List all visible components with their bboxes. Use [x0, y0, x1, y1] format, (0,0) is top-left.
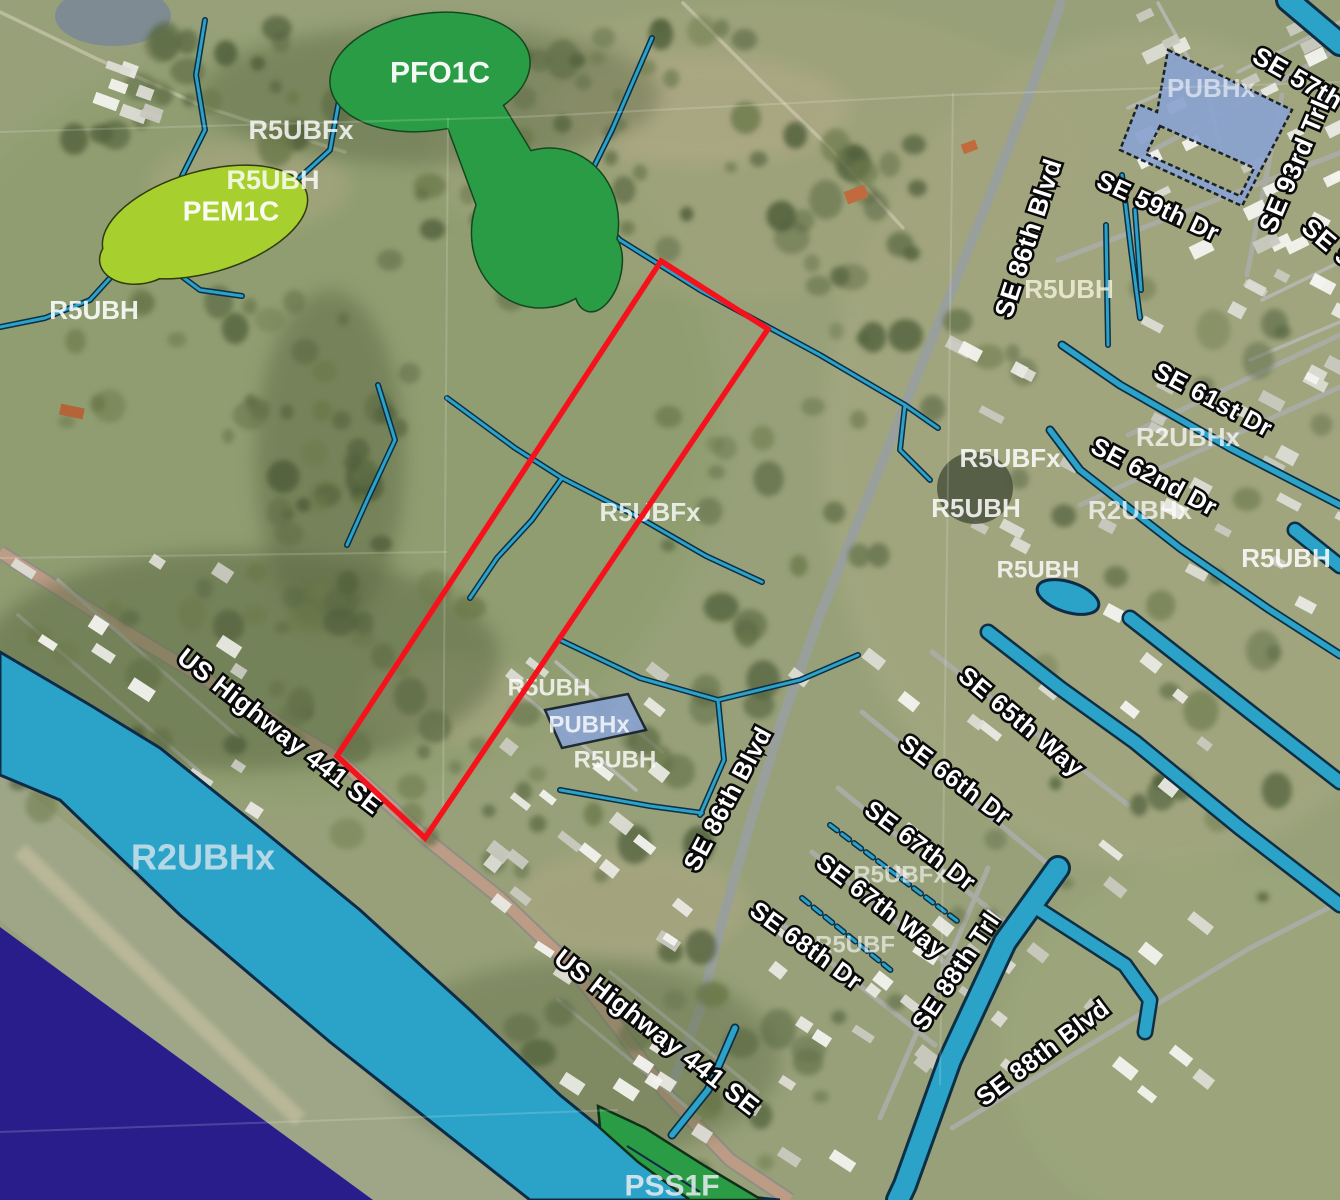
tree-blob: [280, 404, 293, 419]
tree-blob: [262, 16, 292, 41]
tree-blob: [888, 319, 923, 352]
tree-blob: [332, 411, 352, 430]
tree-blob: [680, 207, 693, 222]
wetland-label-r5ubh: R5UBH: [1241, 543, 1331, 573]
tree-blob: [351, 629, 376, 648]
tree-blob: [106, 601, 122, 616]
tree-blob: [849, 160, 879, 185]
tree-blob: [757, 1155, 773, 1170]
tree-blob: [344, 454, 362, 472]
tree-blob: [529, 815, 546, 832]
wetland-label-pubhx: PUBHx: [548, 712, 630, 739]
tree-blob: [149, 22, 181, 61]
tree-blob: [323, 609, 359, 636]
wetland-label-r5ubh: R5UBH: [1024, 274, 1114, 304]
tree-blob: [655, 406, 682, 428]
tree-blob: [584, 802, 603, 826]
tree-blob: [985, 829, 1007, 850]
wetland-label-pem1c: PEM1C: [183, 196, 279, 227]
tree-blob: [394, 677, 427, 715]
tree-blob: [823, 502, 845, 524]
tree-blob: [246, 563, 267, 582]
tree-blob: [482, 805, 496, 818]
tree-blob: [337, 312, 350, 326]
wetland-label-r5ubh: R5UBH: [997, 557, 1080, 584]
tree-blob: [793, 1048, 824, 1075]
tree-blob: [1051, 504, 1076, 527]
tree-blob: [750, 151, 768, 167]
tree-blob: [696, 982, 729, 1007]
wetland-label-r2ubhx: R2UBHx: [1136, 422, 1241, 452]
tree-blob: [654, 20, 668, 33]
tree-blob: [813, 1091, 829, 1103]
tree-blob: [233, 401, 268, 430]
tree-blob: [687, 16, 718, 46]
tree-blob: [503, 1013, 539, 1042]
tree-blob: [291, 339, 319, 365]
tree-blob: [663, 69, 679, 88]
tree-blob: [60, 123, 88, 155]
tree-blob: [753, 461, 783, 496]
tree-blob: [214, 40, 237, 66]
tree-blob: [1257, 892, 1269, 902]
wetland-label-r5ubh: R5UBH: [574, 747, 657, 774]
tree-blob: [167, 332, 186, 347]
tree-blob: [178, 597, 206, 631]
tree-blob: [370, 536, 392, 553]
tree-blob: [575, 74, 592, 90]
wetland-label-r5ubh: R5UBH: [226, 165, 319, 195]
wetland-label-r5ubfx: R5UBFx: [248, 115, 353, 145]
tree-blob: [848, 544, 870, 568]
tree-blob: [251, 56, 266, 71]
tree-blob: [790, 555, 808, 577]
tree-blob: [868, 543, 890, 568]
map-svg: PFO1CR5UBFxR5UBHPEM1CR5UBHR5UBFxR5UBHPUB…: [0, 0, 1340, 1200]
tree-blob: [371, 643, 395, 670]
tree-blob: [222, 429, 234, 444]
tree-blob: [337, 571, 359, 595]
tree-blob: [213, 610, 244, 643]
tree-blob: [1049, 777, 1062, 791]
tree-blob: [1130, 794, 1148, 817]
tree-blob: [255, 308, 286, 332]
tree-blob: [287, 687, 314, 720]
wetland-label-r2ubhx: R2UBHx: [131, 837, 275, 878]
tree-blob: [310, 582, 327, 602]
tree-blob: [301, 440, 328, 468]
tree-blob: [269, 80, 282, 94]
tree-blob: [801, 398, 825, 416]
tree-blob: [943, 309, 972, 334]
tree-blob: [281, 509, 293, 520]
tree-blob: [296, 498, 311, 512]
wetland-label-pss1f: PSS1F: [624, 1170, 719, 1200]
tree-blob: [282, 587, 303, 609]
tree-blob: [879, 152, 900, 177]
tree-blob: [1267, 645, 1282, 662]
tree-blob: [312, 400, 332, 421]
tree-blob: [821, 129, 851, 164]
tree-blob: [269, 681, 285, 698]
tree-blob: [1183, 690, 1218, 731]
tree-blob: [1311, 414, 1333, 436]
tree-blob: [806, 276, 832, 296]
tree-blob: [725, 162, 738, 173]
tree-blob: [544, 999, 574, 1027]
tree-blob: [397, 774, 426, 800]
tree-blob: [287, 91, 299, 105]
tree-blob: [275, 622, 291, 634]
wetland-label-pubhx: PUBHx: [1167, 73, 1256, 103]
tree-blob: [887, 232, 914, 257]
tree-blob: [774, 221, 810, 254]
tree-blob: [449, 761, 462, 774]
tree-blob: [633, 164, 647, 181]
tree-blob: [1233, 487, 1261, 511]
tree-blob: [731, 29, 757, 51]
tree-blob: [592, 27, 615, 48]
tree-blob: [902, 135, 926, 155]
tree-blob: [590, 51, 606, 64]
tree-blob: [751, 426, 775, 451]
tree-blob: [309, 493, 329, 513]
tree-blob: [706, 436, 724, 451]
tree-blob: [685, 929, 716, 964]
tree-blob: [119, 610, 140, 626]
tree-blob: [1146, 590, 1175, 621]
tree-blob: [1242, 342, 1274, 379]
tree-blob: [275, 522, 304, 547]
tree-blob: [1196, 309, 1230, 350]
tree-blob: [908, 180, 927, 197]
tree-blob: [604, 150, 618, 165]
tree-blob: [377, 249, 403, 270]
tree-blob: [313, 361, 337, 383]
tree-blob: [196, 578, 213, 599]
tree-blob: [267, 460, 300, 493]
tree-blob: [330, 818, 365, 849]
tree-blob: [418, 710, 451, 743]
tree-blob: [553, 115, 572, 133]
tree-blob: [704, 593, 739, 622]
tree-blob: [708, 465, 725, 479]
tree-blob: [850, 410, 867, 429]
tree-blob: [417, 745, 431, 759]
tree-blob: [546, 39, 581, 79]
tree-blob: [283, 290, 305, 314]
tree-blob: [242, 298, 257, 315]
tree-blob: [93, 389, 126, 422]
tree-blob: [89, 124, 113, 143]
wetland-label-r5ubfx: R5UBFx: [959, 443, 1061, 473]
tree-blob: [1104, 566, 1128, 588]
tree-blob: [761, 1009, 797, 1049]
tree-blob: [620, 221, 635, 236]
tree-blob: [65, 329, 86, 354]
tree-blob: [663, 990, 686, 1011]
wetland-label-pfo1c: PFO1C: [390, 57, 490, 90]
tree-blob: [223, 735, 246, 755]
wetland-label-r5ubh: R5UBH: [49, 295, 139, 325]
tree-blob: [183, 94, 196, 107]
tree-blob: [856, 332, 870, 346]
tree-blob: [1262, 772, 1292, 809]
tree-blob: [1261, 309, 1288, 340]
tree-blob: [242, 605, 268, 625]
tree-blob: [809, 180, 843, 220]
tree-blob: [783, 122, 807, 149]
map-canvas[interactable]: PFO1CR5UBFxR5UBHPEM1CR5UBHR5UBFxR5UBHPUB…: [0, 0, 1340, 1200]
tree-blob: [831, 1011, 846, 1024]
tree-blob: [420, 219, 445, 240]
tree-blob: [829, 322, 844, 340]
tree-blob: [222, 313, 249, 344]
tree-blob: [655, 236, 680, 262]
tree-blob: [830, 267, 850, 287]
tree-blob: [528, 766, 546, 781]
tree-blob: [740, 630, 755, 648]
tree-blob: [846, 147, 863, 161]
tree-blob: [804, 254, 820, 272]
tree-blob: [414, 188, 428, 201]
tree-blob: [714, 19, 730, 37]
tree-blob: [399, 363, 421, 384]
wetland-label-r5ubh: R5UBH: [931, 493, 1021, 523]
